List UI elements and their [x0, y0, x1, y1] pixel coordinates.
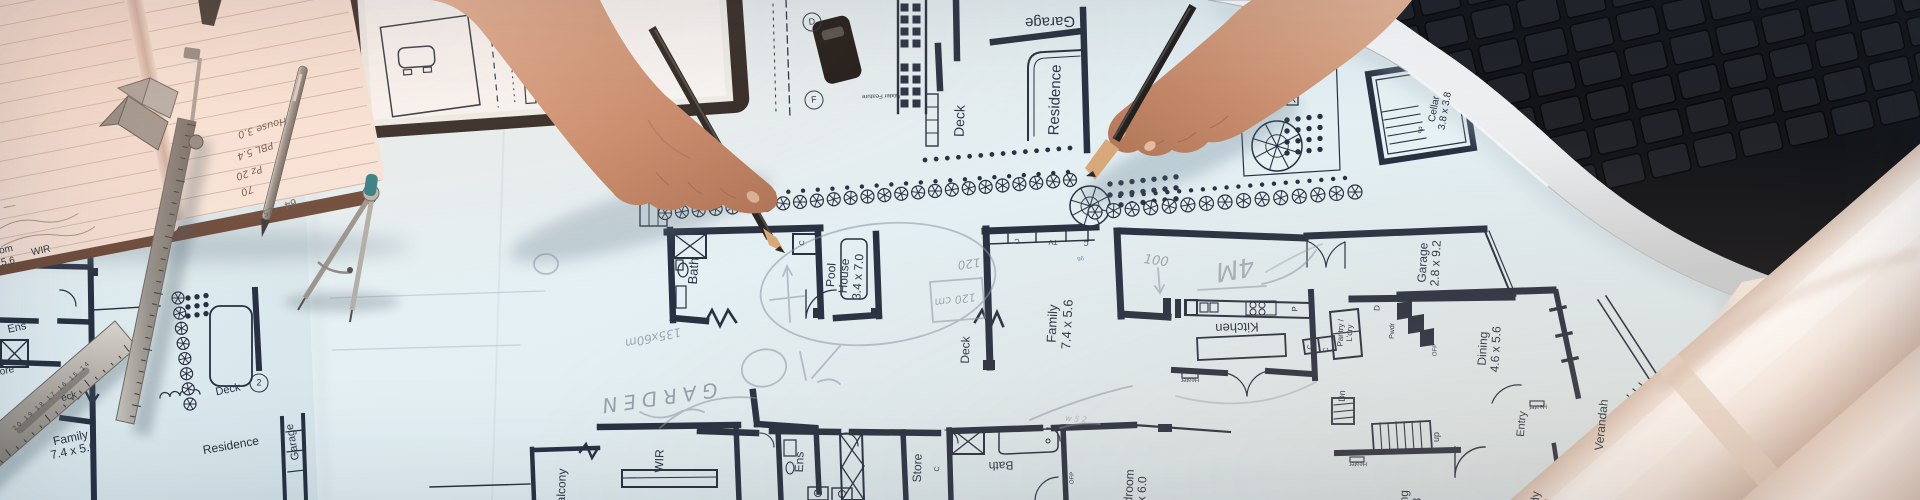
scene-layer: [0, 0, 1920, 500]
blueprint-photo-scene: GarageResidenceDeckWater FeatureDFPool H…: [0, 0, 1920, 500]
